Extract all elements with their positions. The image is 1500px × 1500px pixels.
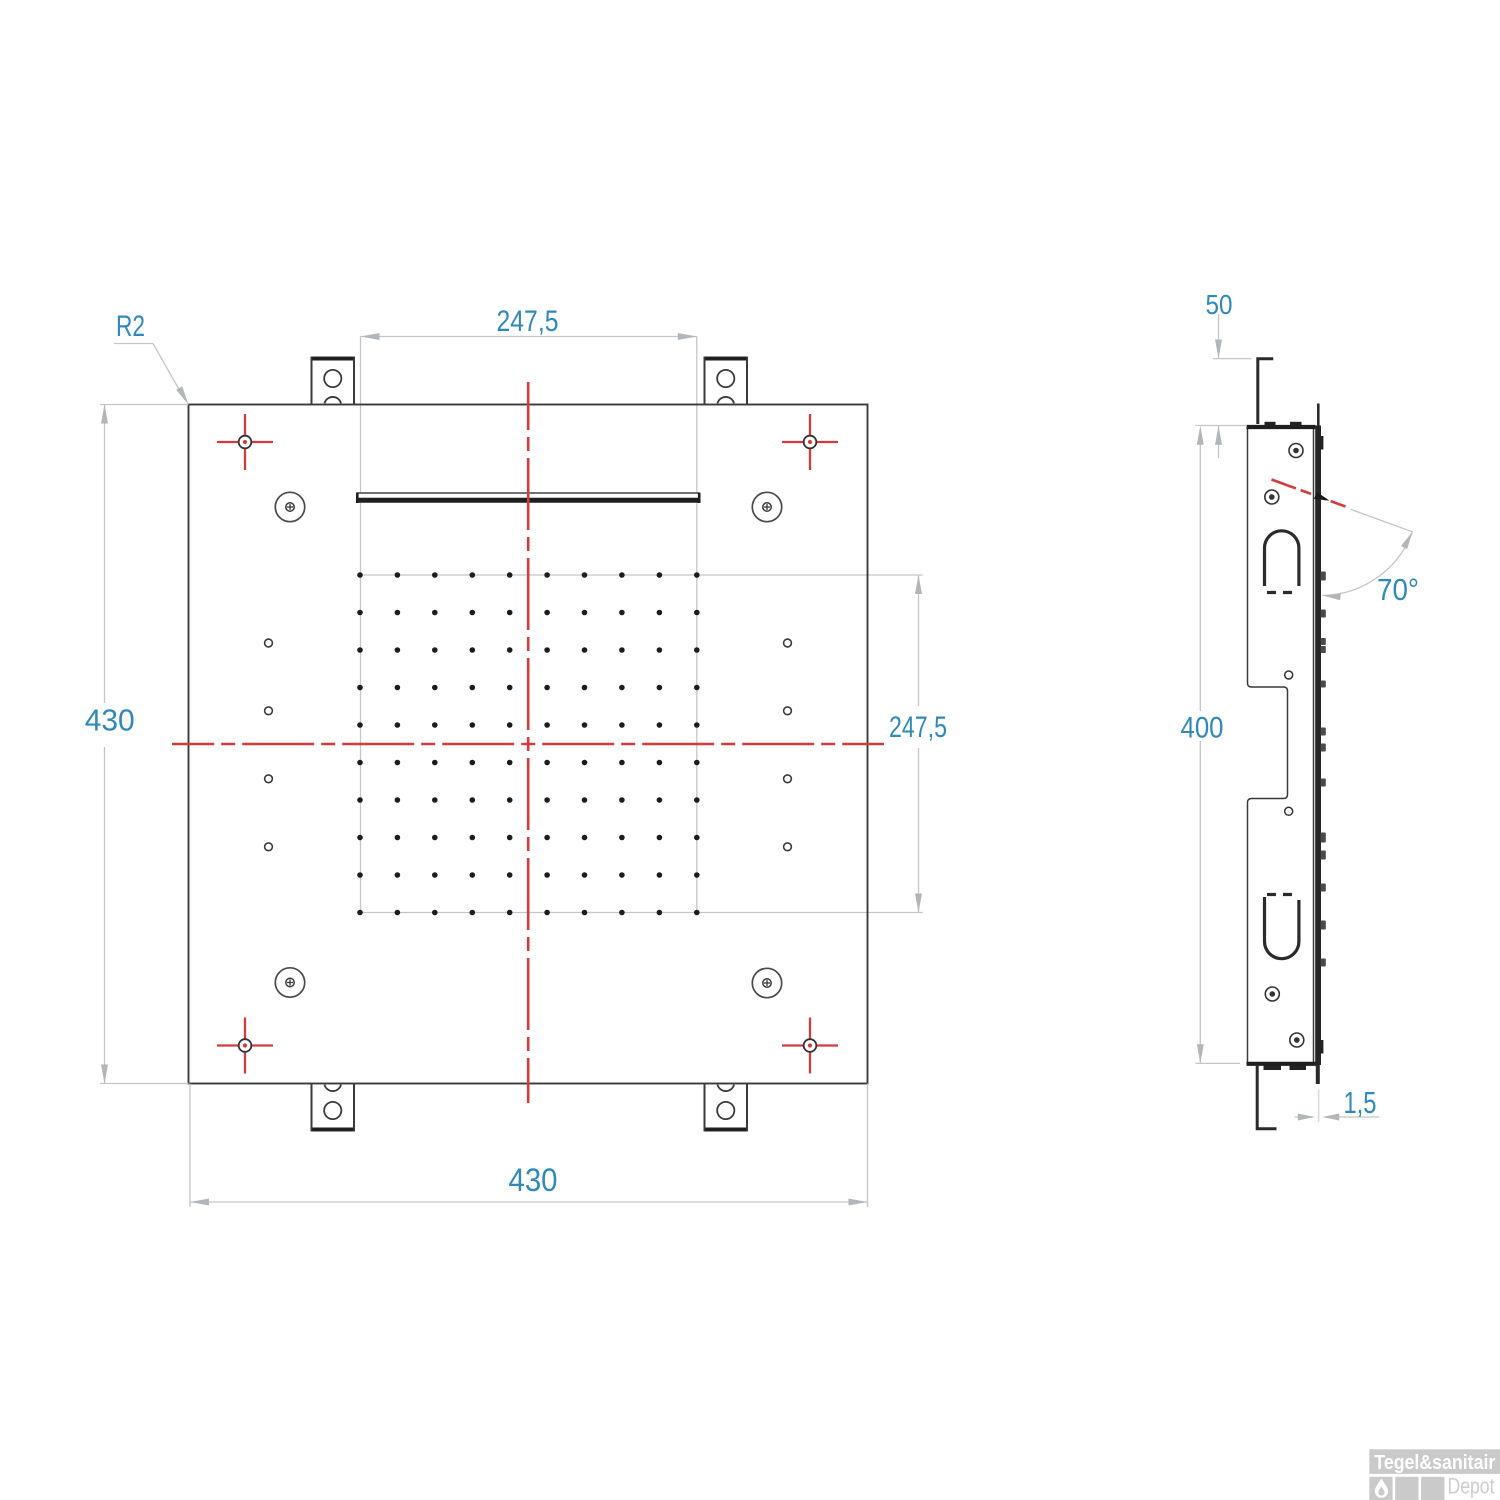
svg-text:400: 400 — [1181, 712, 1224, 745]
svg-text:R2: R2 — [116, 310, 145, 343]
svg-text:Depot: Depot — [1448, 1474, 1495, 1499]
svg-text:247,5: 247,5 — [889, 711, 947, 744]
svg-text:430: 430 — [509, 1162, 558, 1198]
svg-text:Tegel&sanitair: Tegel&sanitair — [1374, 1451, 1495, 1474]
svg-text:50: 50 — [1206, 289, 1233, 320]
svg-text:1,5: 1,5 — [1344, 1085, 1377, 1120]
svg-text:430: 430 — [85, 703, 135, 738]
svg-text:247,5: 247,5 — [497, 305, 559, 338]
svg-text:70°: 70° — [1377, 572, 1419, 607]
